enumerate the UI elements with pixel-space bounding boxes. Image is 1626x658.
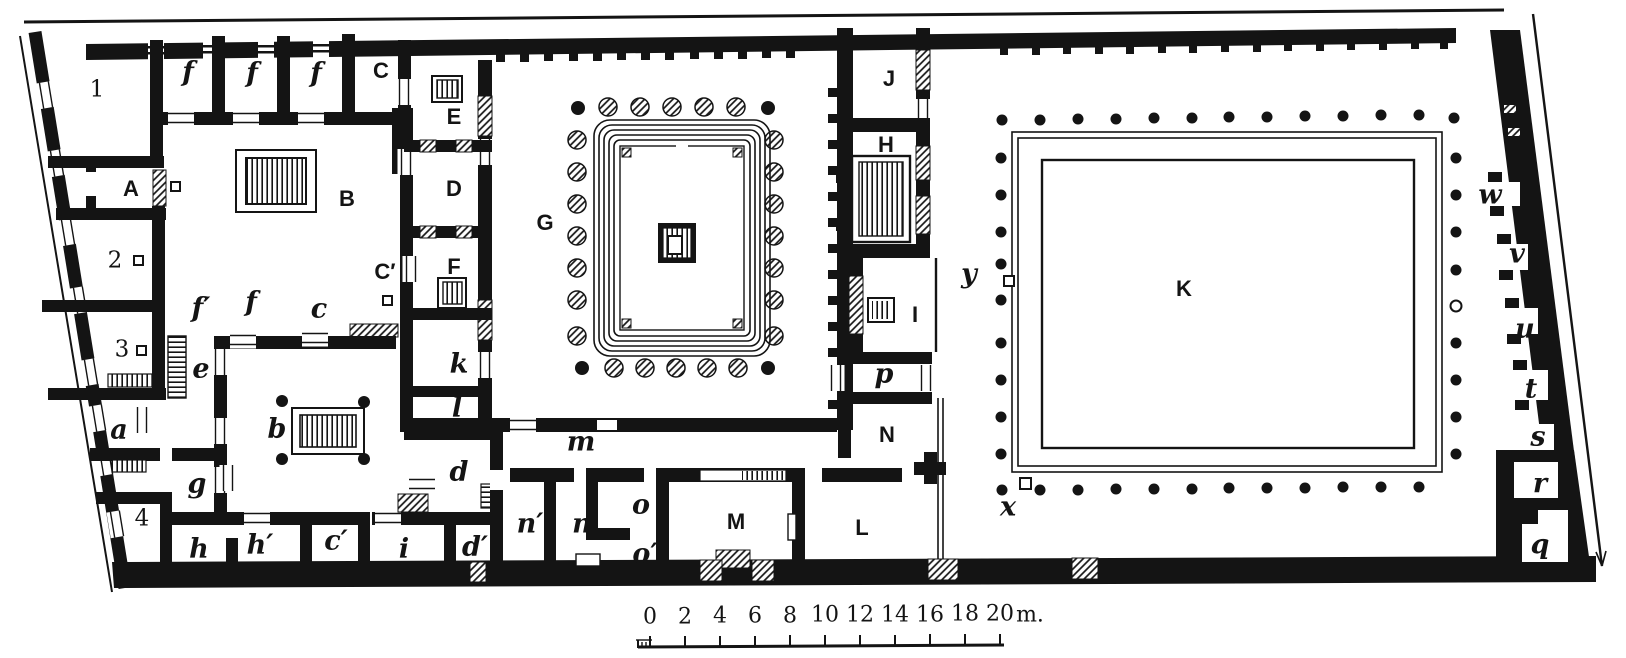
label-niche-s: s xyxy=(1530,424,1545,451)
scale-tick-20: 20 xyxy=(986,602,1014,627)
label-room-f-3: f xyxy=(310,60,322,87)
peristyle-wall-teeth xyxy=(828,88,837,409)
label-room-M: M xyxy=(727,511,745,533)
label-room-J: J xyxy=(883,68,895,90)
label-room-l: l xyxy=(452,395,462,422)
floor-plan-drawing xyxy=(0,0,1626,658)
label-room-o-prime: o′ xyxy=(632,541,657,568)
label-room-n-prime: n′ xyxy=(517,511,544,538)
label-room-k: k xyxy=(450,351,469,378)
label-room-C-prime: C′ xyxy=(374,261,395,283)
label-room-L: L xyxy=(855,517,868,539)
label-room-i: i xyxy=(399,536,409,563)
scale-ruler xyxy=(636,634,1004,648)
label-room-b: b xyxy=(268,416,287,443)
floor-plan-figure: 1 f f f C A B 2 C′ 3 f′ f c e a b g 4 h … xyxy=(0,0,1626,658)
scale-tick-8: 8 xyxy=(783,604,797,629)
label-room-d: d xyxy=(450,459,469,486)
label-room-r: r xyxy=(1533,471,1547,498)
label-room-E: E xyxy=(447,106,462,128)
label-niche-w: w xyxy=(1478,182,1501,209)
label-room-f-2: f xyxy=(246,60,258,87)
label-room-f-prime: f′ xyxy=(192,295,211,322)
label-room-4: 4 xyxy=(135,508,150,531)
label-room-H: H xyxy=(878,134,894,156)
label-peristyle-G: G xyxy=(536,212,553,234)
label-room-3: 3 xyxy=(115,339,130,362)
label-room-B: B xyxy=(339,188,355,210)
label-room-o: o xyxy=(632,492,650,519)
label-room-2: 2 xyxy=(108,250,123,273)
label-room-q: q xyxy=(1531,532,1550,559)
scale-tick-14: 14 xyxy=(881,603,909,628)
label-room-D: D xyxy=(446,178,462,200)
label-room-h-prime: h′ xyxy=(247,532,274,559)
label-room-h: h xyxy=(189,536,209,563)
label-room-I: I xyxy=(912,304,918,326)
scale-tick-12: 12 xyxy=(846,603,874,628)
label-room-F: F xyxy=(447,256,460,278)
label-corridor-m: m xyxy=(567,429,596,456)
label-room-e: e xyxy=(192,356,209,383)
label-room-n: n xyxy=(572,511,592,538)
scale-tick-0: 0 xyxy=(643,605,657,630)
label-niche-t: t xyxy=(1525,376,1537,403)
label-marker-y: y xyxy=(961,261,977,288)
scale-tick-10: 10 xyxy=(811,603,839,628)
label-room-c-prime: c′ xyxy=(324,528,348,555)
garden-colonnade xyxy=(996,110,1462,496)
label-room-A: A xyxy=(123,178,139,200)
label-corridor-p: p xyxy=(875,361,894,388)
label-niche-v: v xyxy=(1509,241,1525,268)
scale-tick-6: 6 xyxy=(748,604,762,629)
label-room-N: N xyxy=(879,424,895,446)
scale-tick-2: 2 xyxy=(678,605,692,630)
label-marker-x: x xyxy=(1000,494,1016,521)
label-room-a: a xyxy=(110,417,128,444)
label-room-C: C xyxy=(373,60,389,82)
label-room-f-4: f xyxy=(245,289,257,316)
label-room-f-1: f xyxy=(182,59,194,86)
scale-tick-18: 18 xyxy=(951,602,979,627)
label-garden-K: K xyxy=(1176,278,1192,300)
label-niche-u: u xyxy=(1515,316,1535,343)
label-room-d-prime: d′ xyxy=(462,534,488,561)
label-room-c: c xyxy=(311,296,327,323)
label-room-1: 1 xyxy=(90,79,105,102)
scale-unit: m. xyxy=(1016,603,1044,628)
label-room-g: g xyxy=(188,471,207,498)
scale-tick-4: 4 xyxy=(713,604,727,629)
scale-tick-16: 16 xyxy=(916,603,944,628)
